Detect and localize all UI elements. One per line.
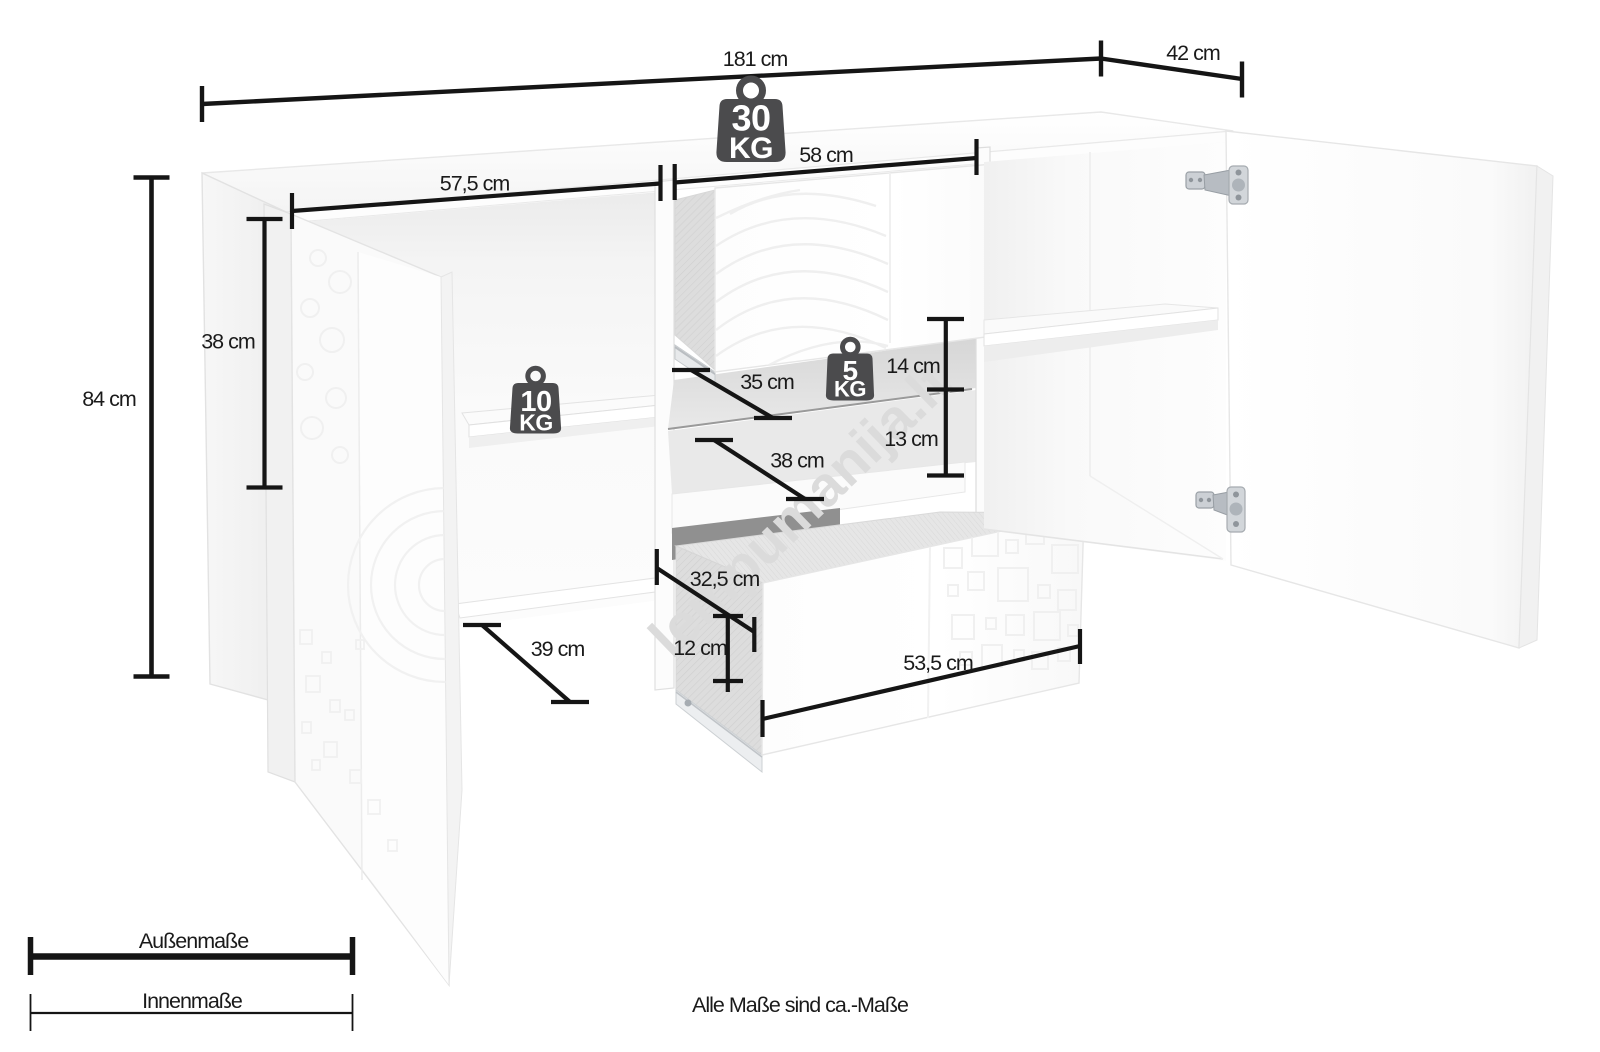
svg-text:13 cm: 13 cm (884, 427, 938, 451)
svg-text:Innenmaße: Innenmaße (142, 989, 242, 1013)
svg-text:38 cm: 38 cm (201, 330, 255, 354)
svg-text:Außenmaße: Außenmaße (139, 929, 248, 953)
svg-text:14 cm: 14 cm (886, 354, 940, 378)
svg-text:42 cm: 42 cm (1166, 41, 1220, 65)
svg-text:35 cm: 35 cm (740, 370, 794, 394)
svg-text:58 cm: 58 cm (799, 143, 853, 167)
svg-text:KG: KG (729, 132, 773, 165)
svg-text:181 cm: 181 cm (723, 47, 788, 71)
svg-text:KG: KG (519, 410, 553, 436)
svg-text:Alle Maße sind ca.-Maße: Alle Maße sind ca.-Maße (692, 993, 908, 1017)
svg-text:12 cm: 12 cm (673, 636, 727, 660)
svg-text:KG: KG (834, 377, 866, 402)
svg-text:53,5 cm: 53,5 cm (903, 651, 973, 675)
svg-text:39 cm: 39 cm (531, 637, 585, 661)
svg-text:38 cm: 38 cm (770, 449, 824, 473)
svg-text:32,5 cm: 32,5 cm (690, 567, 760, 591)
svg-text:84 cm: 84 cm (82, 387, 136, 411)
svg-text:57,5 cm: 57,5 cm (440, 172, 510, 196)
